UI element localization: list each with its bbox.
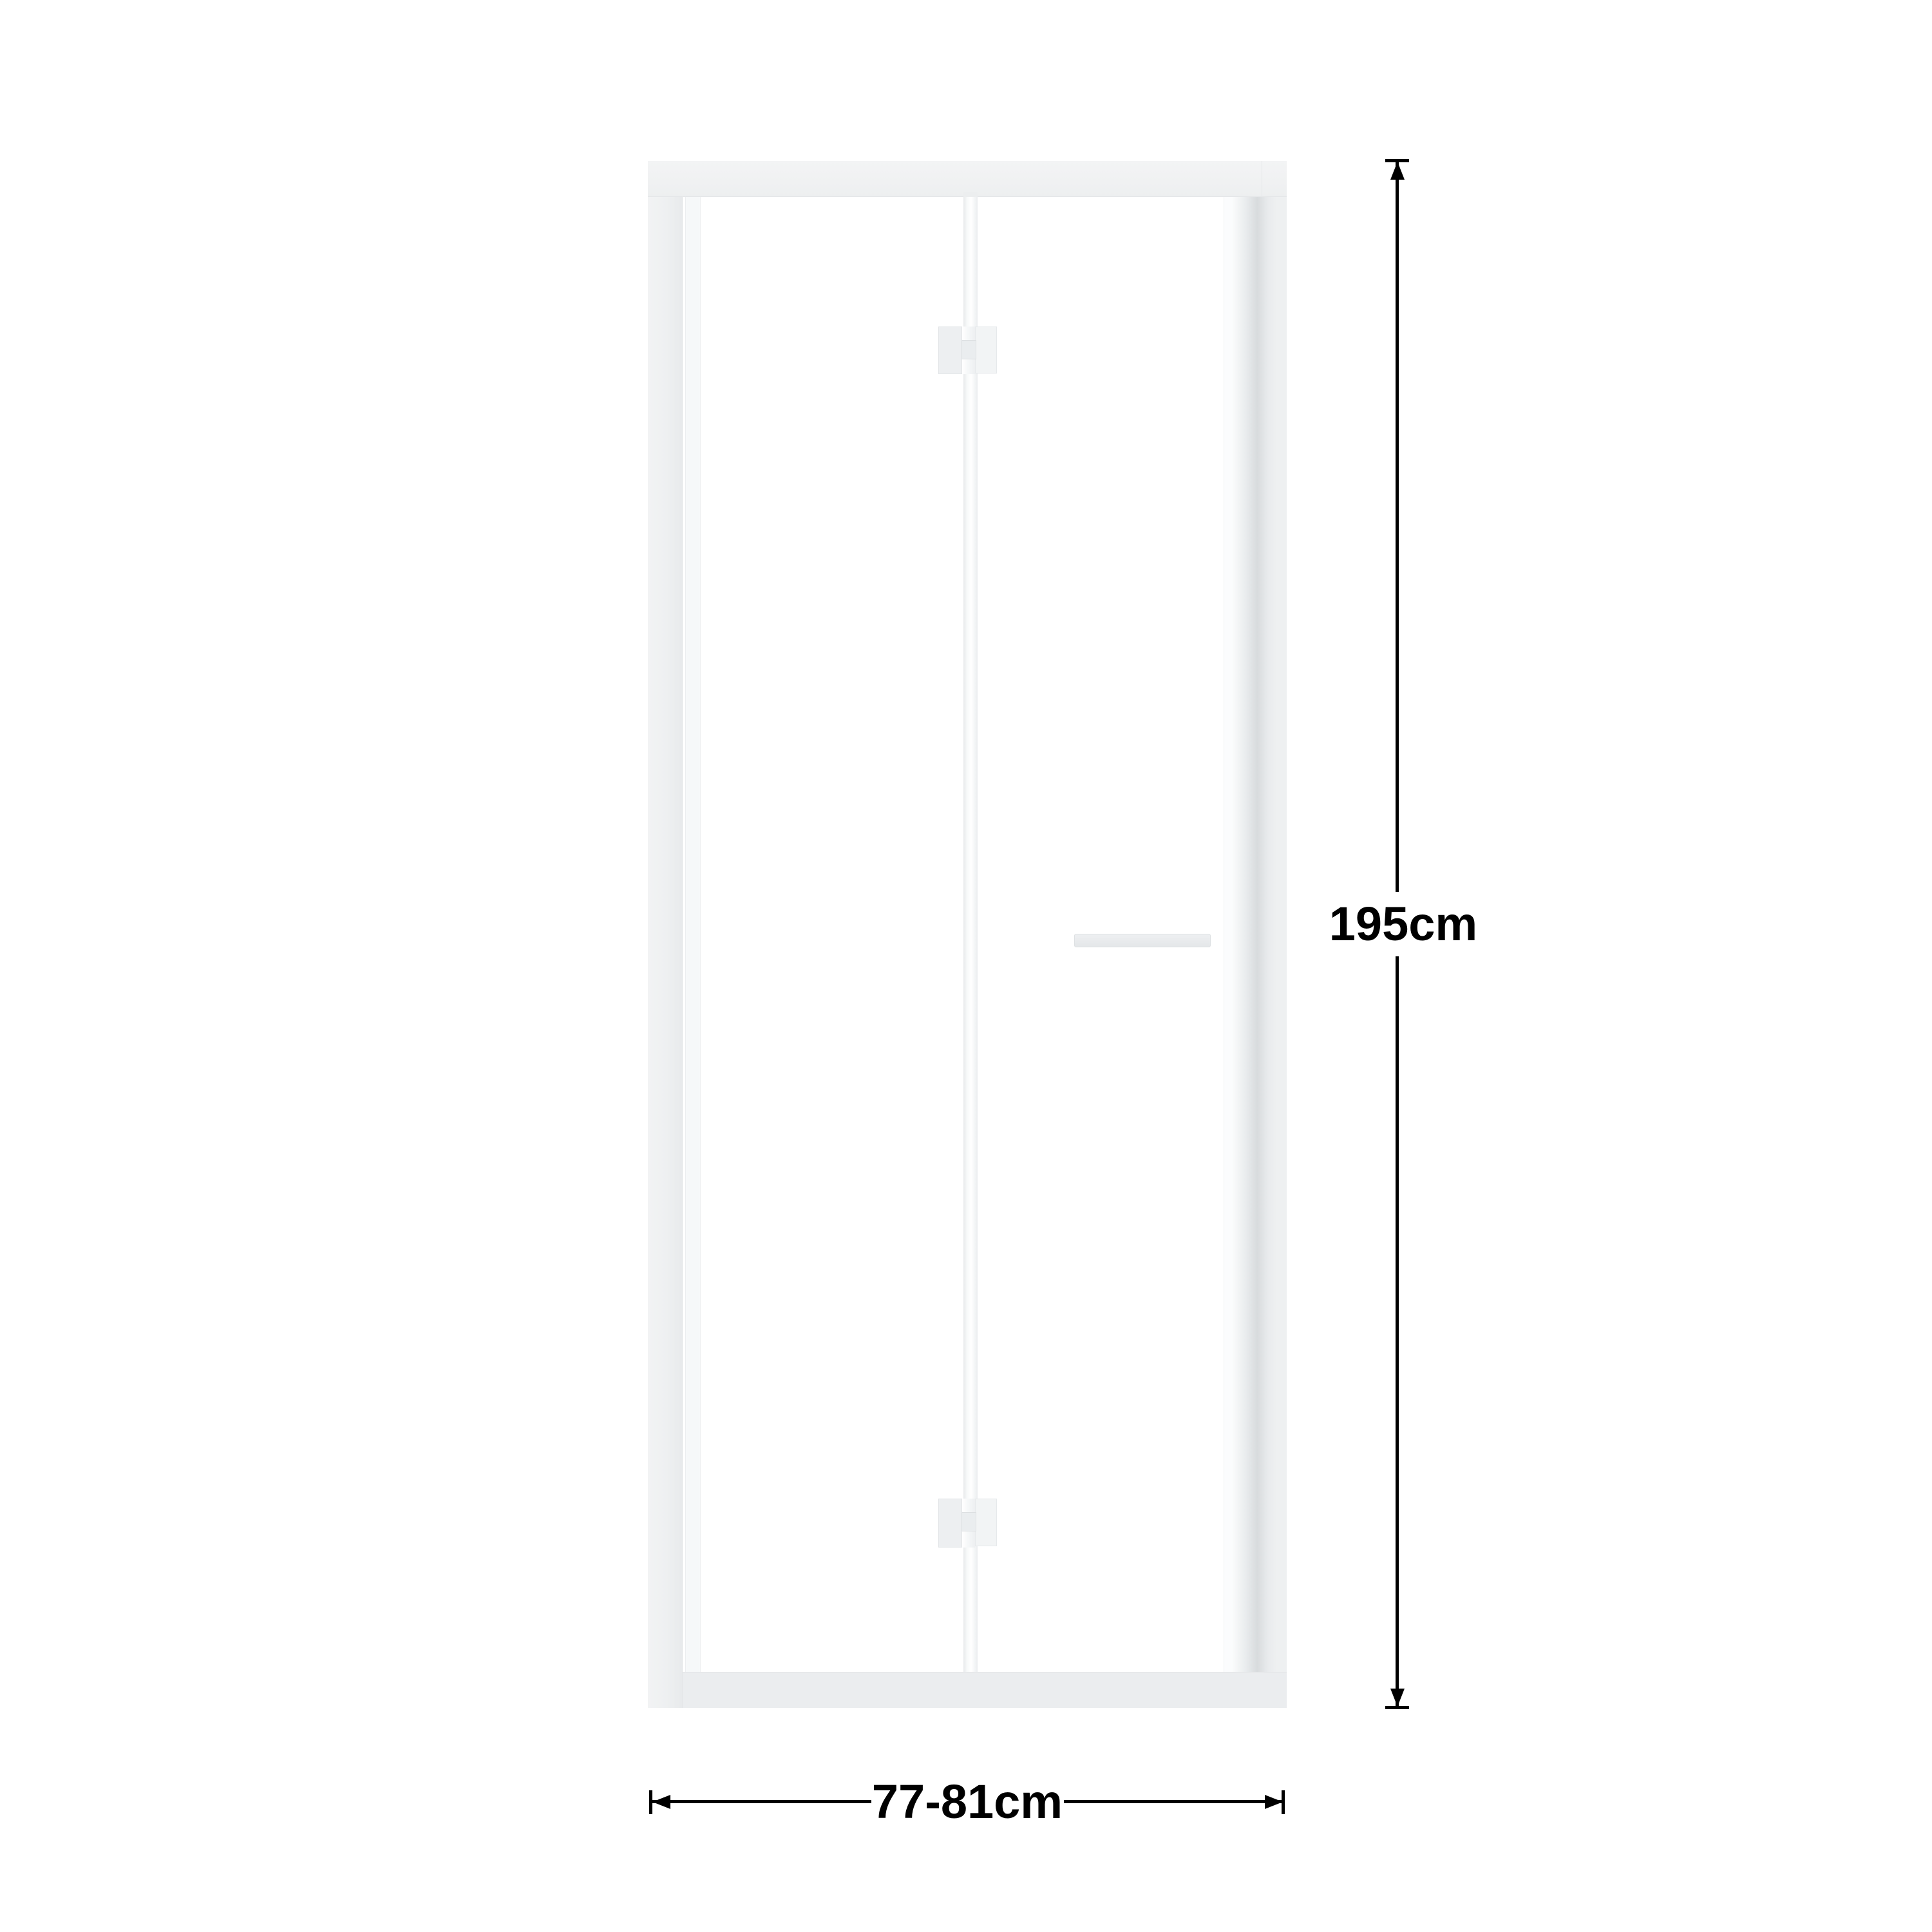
- frame-right-stile: [1232, 161, 1287, 1708]
- height-dimension-bottom-tick: [1385, 1706, 1409, 1709]
- width-dimension-line-left: [652, 1800, 871, 1803]
- height-dimension-line-upper: [1396, 162, 1399, 892]
- hinge-top: [938, 327, 997, 374]
- width-dimension-right-arrow-icon: [1265, 1795, 1283, 1809]
- height-dimension-down-arrow-icon: [1390, 1689, 1405, 1707]
- fold-line-top-seam: [963, 192, 978, 197]
- height-dimension-label: 195cm: [1300, 892, 1506, 956]
- hinge-bottom-left-flap: [938, 1499, 962, 1548]
- hinge-bottom-right-flap: [975, 1499, 997, 1546]
- glass-edge-highlight-right: [1224, 197, 1233, 1672]
- width-dimension-label: 77-81cm: [864, 1770, 1070, 1834]
- hinge-bottom-knuckle: [961, 1512, 976, 1531]
- hinge-top-knuckle: [961, 340, 976, 359]
- frame-bottom-rail: [648, 1672, 1287, 1708]
- hinge-top-left-flap: [938, 327, 962, 374]
- product-dimension-diagram: 195cm 77-81cm: [0, 0, 1932, 1932]
- hinge-top-right-flap: [975, 327, 997, 374]
- door-handle: [1074, 934, 1211, 947]
- glass-edge-highlight-left: [685, 197, 701, 1672]
- fold-line: [963, 197, 978, 1672]
- frame-corner-seam: [1262, 161, 1262, 197]
- width-dimension-line-right: [1064, 1800, 1283, 1803]
- frame-left-stile: [648, 161, 683, 1708]
- width-dimension-right-tick: [1282, 1790, 1285, 1814]
- height-dimension-line-lower: [1396, 956, 1399, 1707]
- hinge-bottom: [938, 1499, 997, 1548]
